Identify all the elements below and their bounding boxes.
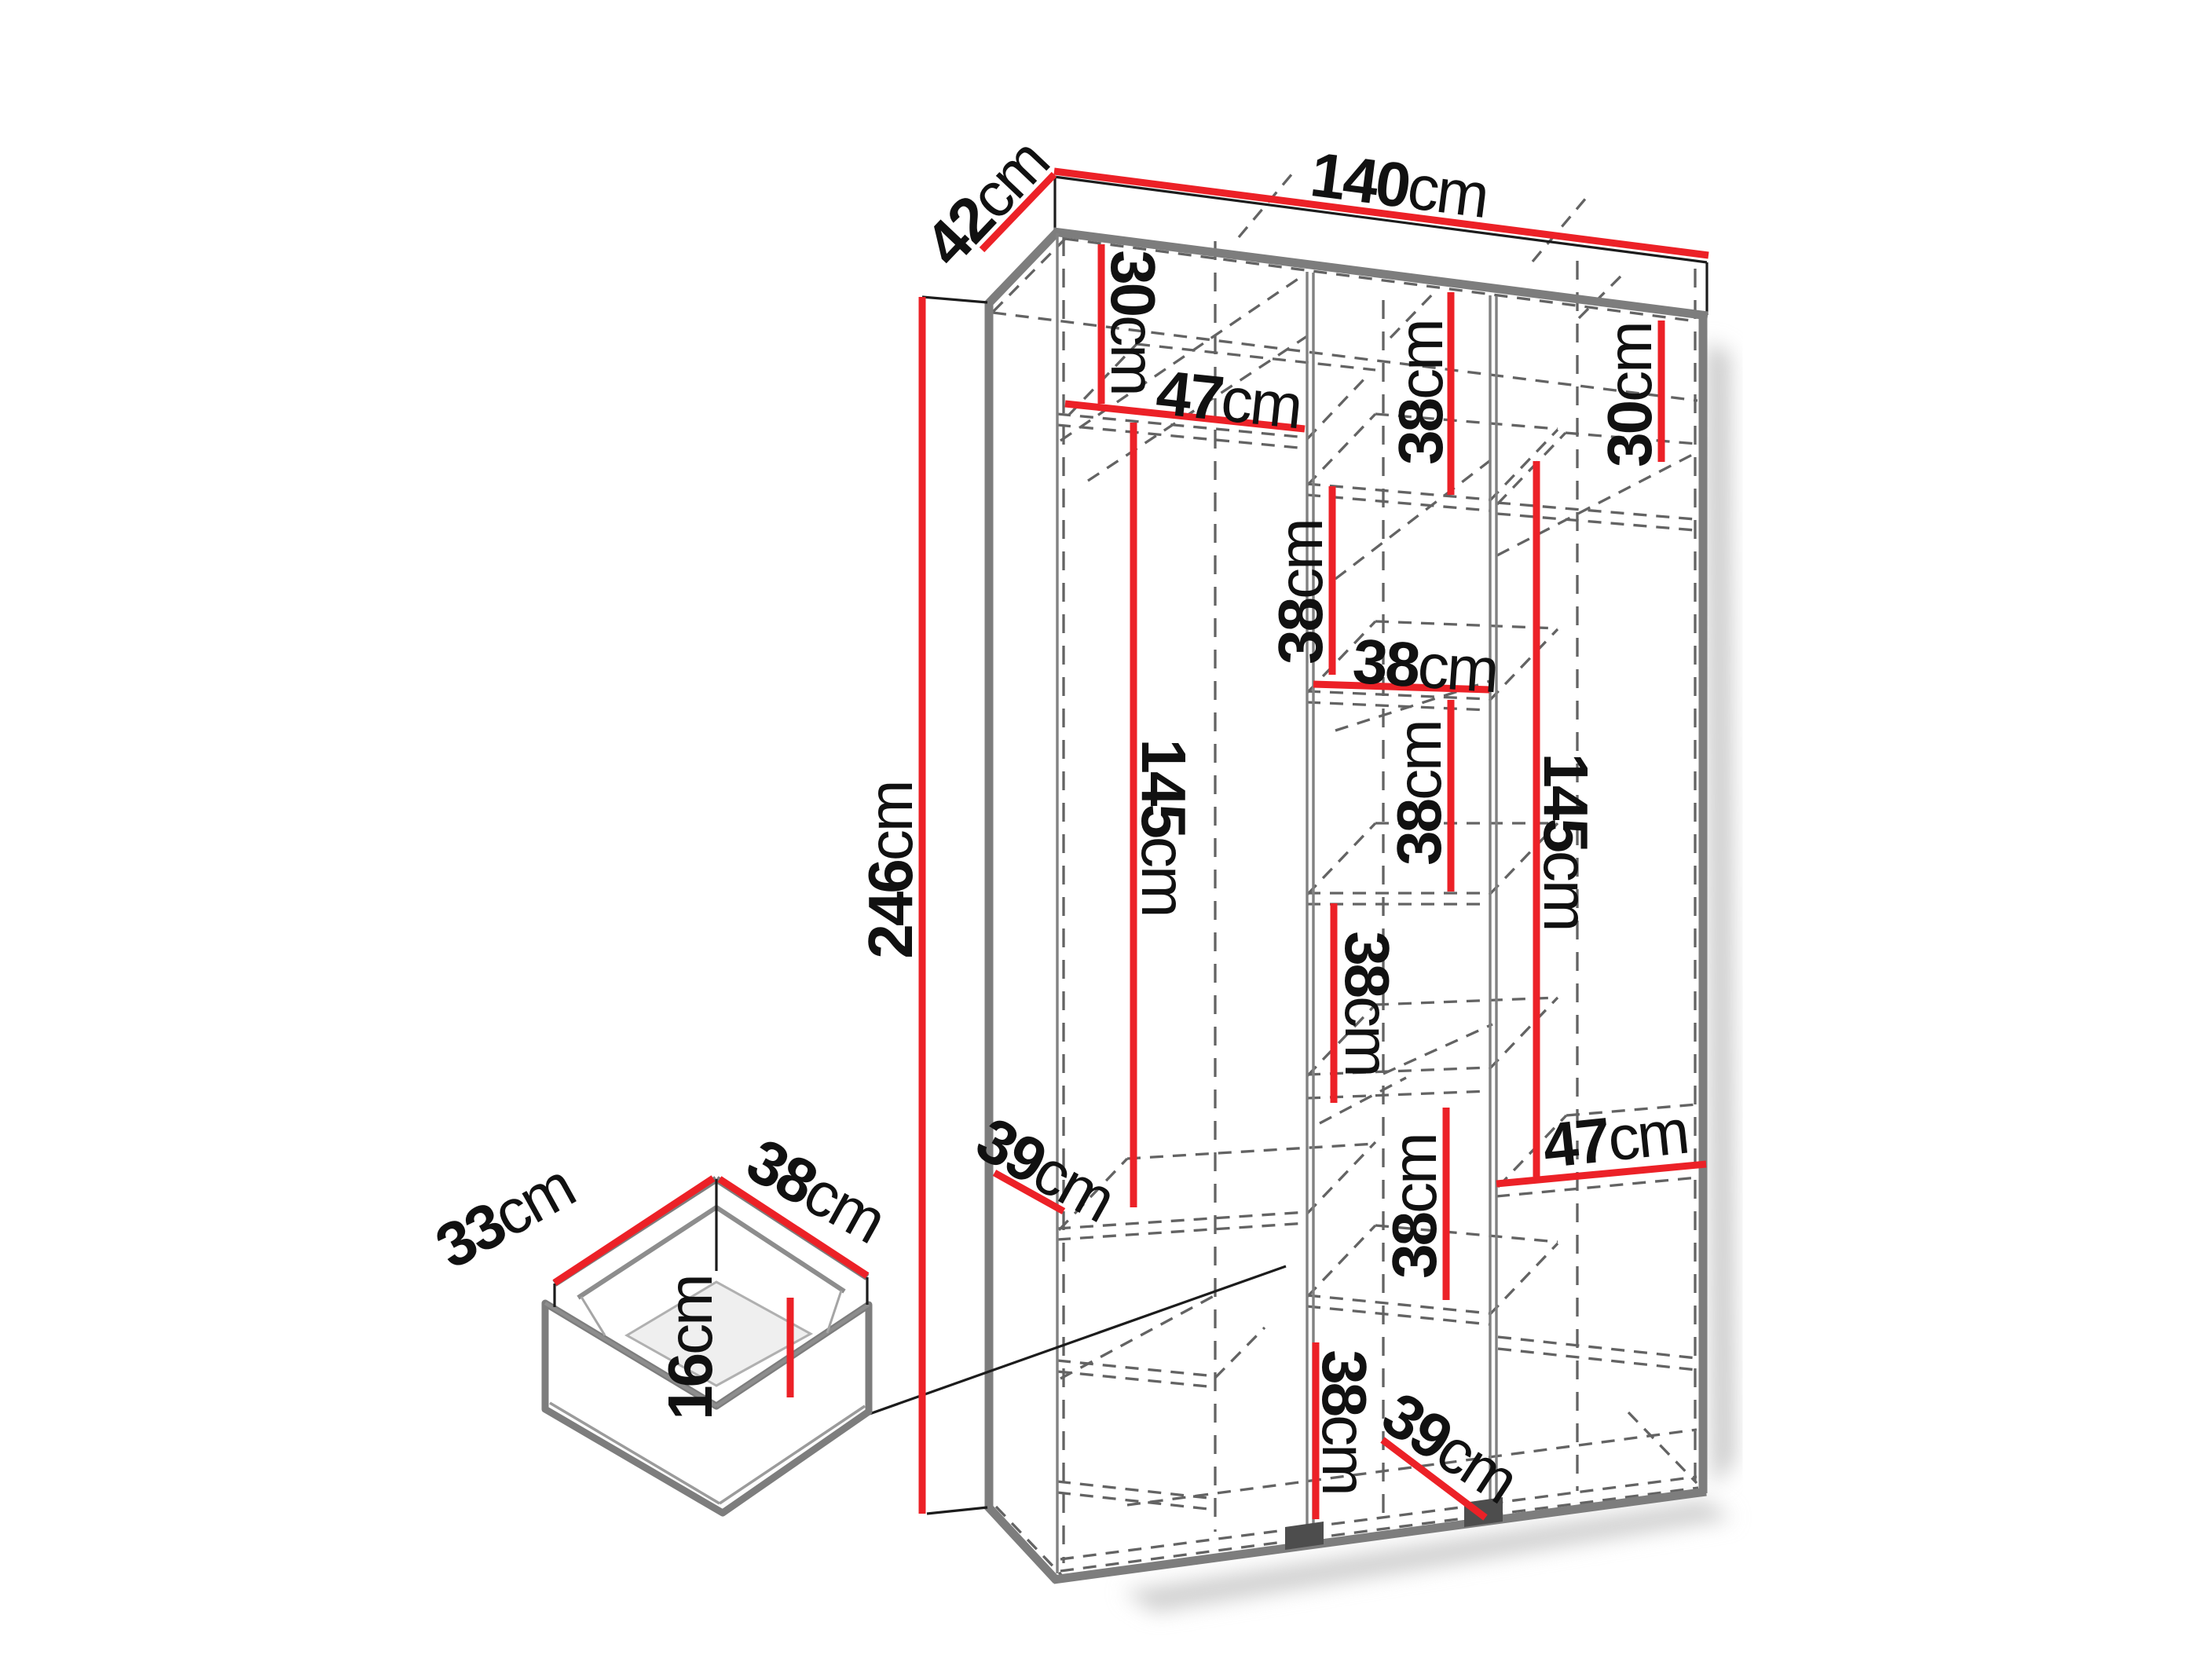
svg-text:38cm: 38cm xyxy=(1384,721,1454,866)
svg-text:38cm: 38cm xyxy=(1310,1350,1380,1494)
svg-text:30cm: 30cm xyxy=(1099,250,1169,394)
svg-text:38cm: 38cm xyxy=(1333,931,1403,1075)
svg-text:16cm: 16cm xyxy=(655,1276,725,1420)
svg-text:30cm: 30cm xyxy=(1595,323,1664,467)
svg-text:38cm: 38cm xyxy=(1265,520,1335,665)
svg-text:38cm: 38cm xyxy=(1379,1134,1449,1279)
svg-text:246cm: 246cm xyxy=(855,782,925,958)
svg-text:145cm: 145cm xyxy=(1532,753,1602,929)
svg-text:38cm: 38cm xyxy=(1386,320,1456,465)
svg-text:38cm: 38cm xyxy=(1350,625,1499,705)
svg-text:145cm: 145cm xyxy=(1130,738,1199,915)
